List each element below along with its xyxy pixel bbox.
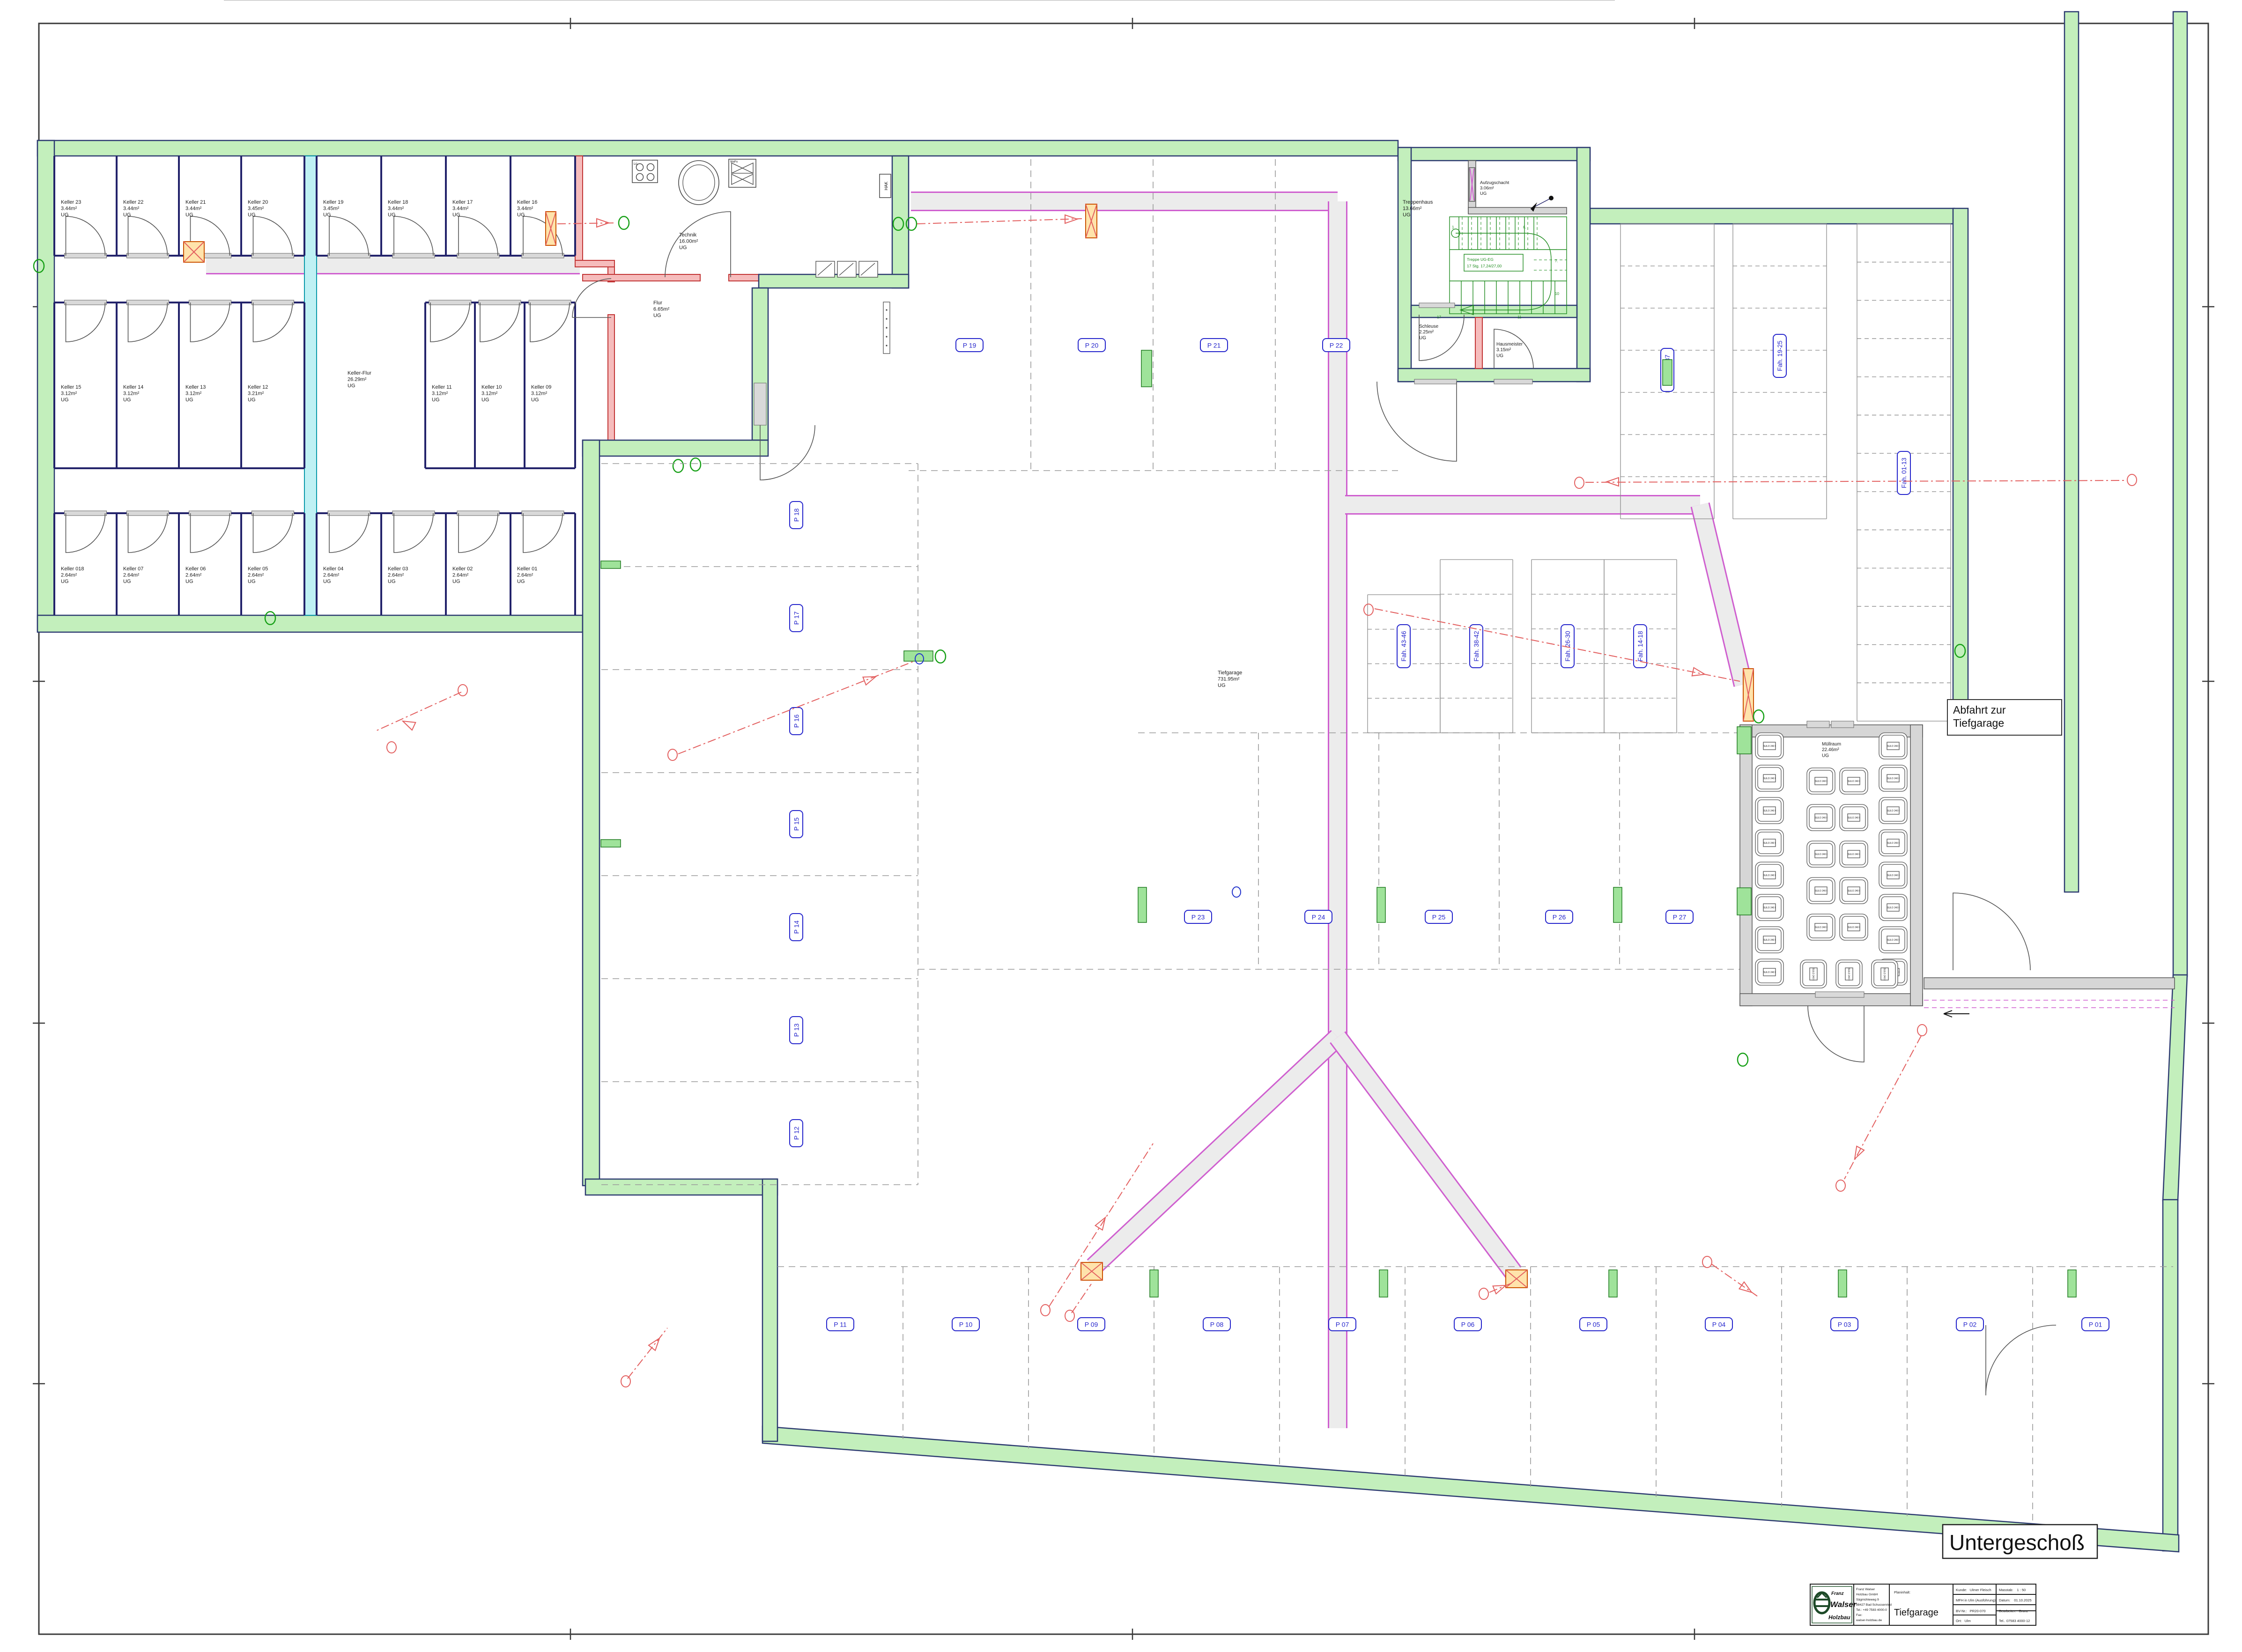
keller-cell-area: 3.45m²	[323, 206, 340, 211]
door-sill	[127, 511, 169, 516]
muellraum-door-panel	[1831, 721, 1854, 728]
keller-cell-name: Keller 12	[248, 384, 268, 390]
svg-text:SULO 240 l: SULO 240 l	[1848, 853, 1860, 856]
pillar	[1379, 1270, 1388, 1297]
keller-door	[523, 513, 562, 553]
svg-text:P 04: P 04	[1712, 1321, 1726, 1328]
room-flur-level: UG	[653, 313, 661, 318]
svg-text:SULO 240 l: SULO 240 l	[1887, 745, 1899, 748]
keller-cell-area: 2.64m²	[388, 572, 404, 578]
keller-cell-name: Keller 20	[248, 199, 268, 205]
stair-note-line1: Treppe UG-EG	[1467, 257, 1494, 262]
door-sill	[754, 383, 766, 425]
keller-cell-level: UG	[531, 397, 539, 403]
door-sill	[522, 511, 564, 516]
waste-bin: SULO 240 l	[1836, 960, 1862, 988]
parking-spot-p07: P 07	[1329, 1318, 1356, 1331]
room-muellraum-level: UG	[1822, 753, 1829, 758]
wall-right-slant	[2163, 975, 2187, 1201]
vent-marker	[619, 216, 629, 229]
door-sill	[252, 511, 294, 516]
masstab-label: Masstab:	[1999, 1588, 2013, 1592]
stair-step-number: 7.	[1555, 259, 1558, 263]
red-marker	[1702, 1256, 1712, 1268]
red-marker	[1917, 1025, 1927, 1036]
leader-arrow	[401, 717, 415, 730]
projekt: MFH in Ulm (Ausführung)	[1956, 1598, 1996, 1602]
parking-spot-p26: P 26	[1546, 910, 1573, 923]
vent-duct	[1700, 505, 1743, 685]
waste-bin: SULO 240 l	[1755, 733, 1783, 759]
svg-text:SULO 240 l: SULO 240 l	[1763, 939, 1776, 942]
door-sill	[392, 253, 435, 258]
waste-bin: SULO 240 l	[1879, 894, 1907, 921]
keller-cell-area: 2.64m²	[248, 572, 264, 578]
pillar	[1663, 360, 1672, 385]
parking-spot-p03: P 03	[1831, 1318, 1858, 1331]
svg-text:P 01: P 01	[2089, 1321, 2102, 1328]
abfahrt-line1: Abfahrt zur	[1953, 704, 2006, 716]
leader-line	[1585, 480, 2126, 482]
parking-spot-p16: P 16	[790, 708, 803, 735]
room-hausmeister-level: UG	[1496, 353, 1503, 358]
door-sill	[127, 253, 169, 258]
parking-spot-p04: P 04	[1705, 1318, 1732, 1331]
leader-arrow	[863, 673, 878, 685]
keller-cell-area: 3.45m²	[248, 206, 264, 211]
parking-spot-p24: P 24	[1305, 910, 1332, 923]
svg-text:Kunde:Ulmer Fleisch: Kunde:Ulmer Fleisch	[1956, 1588, 1991, 1592]
svg-text:SULO 240 l: SULO 240 l	[1848, 817, 1860, 819]
planinhalt-value: Tiefgarage	[1894, 1608, 1939, 1618]
company-line: Tel.: +49 7583 4000-0	[1856, 1608, 1887, 1612]
keller-cell-name: Keller 23	[61, 199, 81, 205]
leader-line	[1375, 609, 1740, 681]
leader-line	[628, 1328, 667, 1379]
parking-spot-p23: P 23	[1184, 910, 1212, 923]
keller-door	[480, 302, 519, 342]
bike-rack-label-fah-14-18: Fah. 14-18	[1634, 625, 1647, 668]
door-sill	[252, 300, 294, 305]
pillar	[904, 651, 933, 661]
keller-door	[128, 216, 168, 256]
stair-step-number: 1	[1452, 225, 1454, 229]
room-tiefgarage-level: UG	[1218, 683, 1226, 688]
keller-cell-level: UG	[481, 397, 489, 403]
svg-text:SULO 240 l: SULO 240 l	[1815, 780, 1827, 783]
bike-rack-label-fah-19-25: Fah. 19-25	[1773, 334, 1786, 377]
red-marker	[621, 1376, 630, 1387]
keller-cell-name: Keller 06	[185, 566, 206, 572]
wall-keller-left	[37, 140, 54, 631]
waste-bin: SULO 240 l	[1872, 960, 1898, 988]
keller-cell-area: 3.21m²	[248, 391, 264, 396]
keller-cell-level: UG	[123, 579, 131, 584]
wall-treppenhaus-right	[1577, 147, 1590, 382]
svg-text:P 27: P 27	[1673, 914, 1687, 921]
vent-duct	[1094, 1037, 1338, 1267]
wall-muellraum-left	[1740, 725, 1752, 1006]
svg-text:P 09: P 09	[1085, 1321, 1098, 1328]
wall-muellraum-right	[1910, 725, 1923, 1006]
svg-text:SULO 240 l: SULO 240 l	[1887, 842, 1899, 845]
keller-cell-area: 2.64m²	[123, 572, 140, 578]
waste-bin: SULO 240 l	[1879, 797, 1907, 824]
svg-text:Fah. 38-42: Fah. 38-42	[1473, 631, 1480, 661]
corridor-door	[572, 279, 611, 317]
wall-treppenhaus-left	[1398, 147, 1411, 382]
svg-text:SULO 240 l: SULO 240 l	[1847, 968, 1850, 980]
keller-cell-level: UG	[248, 579, 256, 584]
wall-bottom-left-vert	[762, 1179, 777, 1441]
svg-text:Ort:Ulm: Ort:Ulm	[1956, 1619, 1971, 1623]
bv-value: PR20-070	[1970, 1609, 1986, 1613]
svg-text:P 26: P 26	[1553, 914, 1566, 921]
bearbeiter-value: Branz	[2019, 1609, 2028, 1613]
vent-marker	[935, 650, 946, 663]
svg-text:SULO 240 l: SULO 240 l	[1887, 907, 1899, 909]
svg-text:P 08: P 08	[1210, 1321, 1224, 1328]
room-flur-area: 6.65m²	[653, 306, 670, 312]
wall-bottom-left-jog	[585, 1179, 777, 1195]
keller-cell-area: 3.44m²	[452, 206, 469, 211]
room-aufzugschacht-name: Aufzugschacht	[1480, 180, 1509, 185]
svg-text:SULO 240 l: SULO 240 l	[1887, 810, 1899, 812]
wall-bike-top	[1590, 208, 1954, 224]
parking-spot-p17: P 17	[790, 605, 803, 632]
keller-cell-level: UG	[123, 397, 131, 403]
abfahrt-line2: Tiefgarage	[1953, 717, 2004, 729]
keller-cell-name: Keller 15	[61, 384, 81, 390]
door-sill	[65, 300, 107, 305]
svg-text:P 22: P 22	[1330, 342, 1343, 349]
svg-text:P 02: P 02	[1963, 1321, 1977, 1328]
keller-door	[459, 216, 498, 256]
parking-spot-p18: P 18	[790, 501, 803, 529]
waste-bin: SULO 240 l	[1807, 914, 1835, 940]
keller-cell-name: Keller 10	[481, 384, 502, 390]
svg-text:Fah. 01-13: Fah. 01-13	[1901, 457, 1908, 488]
red-marker	[1836, 1180, 1845, 1191]
waste-bin: SULO 240 l	[1840, 878, 1868, 904]
room-aufzugschacht-area: 3.06m²	[1480, 186, 1494, 191]
svg-text:P 20: P 20	[1085, 342, 1099, 349]
red-marker	[387, 742, 396, 753]
svg-text:P 13: P 13	[793, 1024, 800, 1037]
parking-spot-p09: P 09	[1078, 1318, 1105, 1331]
pillar	[601, 561, 621, 568]
svg-text:SULO 240 l: SULO 240 l	[1763, 842, 1776, 845]
parking-spot-p05: P 05	[1580, 1318, 1607, 1331]
parking-spot-p11: P 11	[827, 1318, 854, 1331]
keller-cell-area: 3.44m²	[517, 206, 533, 211]
svg-text:P 06: P 06	[1461, 1321, 1475, 1328]
keller-cell-level: UG	[61, 579, 69, 584]
keller-cell-level: UG	[517, 579, 525, 584]
room-treppenhaus-area: 13.66m²	[1403, 206, 1422, 211]
keller-cell-name: Keller 02	[452, 566, 473, 572]
waste-bin: SULO 240 l	[1840, 841, 1868, 867]
svg-text:P 18: P 18	[793, 509, 800, 522]
title-block: Franz Walser Holzbau Franz WalserHolzbau…	[1810, 1584, 2036, 1625]
svg-text:Bearbeiter:Branz: Bearbeiter:Branz	[1999, 1609, 2028, 1613]
keller-cell-level: UG	[185, 212, 193, 218]
keller-cell-name: Keller 11	[432, 384, 452, 390]
keller-cell-name: Keller 17	[452, 199, 473, 205]
plan-content: Keller 233.44m²UGKeller 223.44m²UGKeller…	[34, 0, 2187, 1552]
red-marker	[1041, 1305, 1050, 1316]
pillar	[1838, 1270, 1847, 1297]
door-sill	[65, 511, 107, 516]
company-line: Fax:	[1856, 1614, 1862, 1617]
hak-label: HAK	[884, 182, 888, 191]
pillar	[1141, 350, 1152, 387]
svg-text:BV-Nr.:PR20-070: BV-Nr.:PR20-070	[1956, 1609, 1986, 1613]
svg-text:P 05: P 05	[1587, 1321, 1600, 1328]
waste-bin: SULO 240 l	[1879, 733, 1907, 759]
keller-cell-level: UG	[323, 579, 331, 584]
svg-text:P 12: P 12	[793, 1127, 800, 1140]
keller-cell-name: Keller 13	[185, 384, 206, 390]
svg-text:SULO 240 l: SULO 240 l	[1763, 810, 1776, 812]
leader-line	[917, 219, 1082, 224]
wall-ramp-right	[2173, 12, 2187, 976]
company-line: Sägmühleweg 9	[1856, 1598, 1879, 1601]
bike-rack-label-fah-43-46: Fah. 43-46	[1397, 625, 1410, 668]
waste-bin: SULO 240 l	[1840, 804, 1868, 831]
leader-arrow	[1739, 1282, 1754, 1296]
leader-arrow	[649, 1335, 663, 1350]
svg-text:P 16: P 16	[793, 715, 800, 728]
waste-bin: SULO 240 l	[1755, 862, 1783, 888]
gate-arrow	[1944, 1010, 1969, 1017]
stair-step-number: 6.	[1523, 225, 1526, 229]
floor-title: Untergeschoß	[1949, 1530, 2085, 1555]
company-address: Franz WalserHolzbau GmbHSägmühleweg 9884…	[1856, 1588, 1892, 1622]
parking-spot-p15: P 15	[790, 811, 803, 838]
vent-duct	[1338, 1037, 1514, 1273]
pillar	[1150, 1270, 1158, 1297]
parking-spot-p19: P 19	[956, 339, 983, 352]
keller-door	[253, 513, 293, 553]
keller-door	[128, 513, 168, 553]
pillar	[1377, 887, 1385, 922]
logo-line1: Franz	[1831, 1591, 1844, 1596]
keller-door	[253, 302, 293, 342]
svg-text:SULO 240 l: SULO 240 l	[1763, 777, 1776, 780]
logo-line2: Walser	[1830, 1600, 1857, 1609]
vent-marker	[1738, 1053, 1748, 1066]
room-aufzugschacht-level: UG	[1480, 191, 1487, 196]
bike-rack-label-fah-01-13: Fah. 01-13	[1897, 451, 1910, 494]
wall-treppenhaus-top	[1398, 147, 1590, 161]
keller-cell-level: UG	[432, 397, 440, 403]
keller-cell-name: Keller 14	[123, 384, 143, 390]
keller-door	[66, 302, 105, 342]
pillar	[1138, 887, 1147, 922]
wall-aufzug-bottom	[1468, 207, 1567, 214]
leader-line	[1072, 1284, 1091, 1313]
door-sill	[479, 300, 521, 305]
keller-cell-level: UG	[123, 212, 131, 218]
walser-logo: Franz Walser Holzbau	[1812, 1586, 1857, 1623]
company-line: Holzbau GmbH	[1856, 1593, 1878, 1596]
keller-cell-name: Keller 01	[517, 566, 537, 572]
door-sill	[328, 253, 370, 258]
svg-text:SULO 240 l: SULO 240 l	[1848, 890, 1860, 892]
masstab-value: 1 : 50	[2017, 1588, 2026, 1592]
wall-flur-bottom	[583, 440, 768, 456]
keller-cell-area: 3.12m²	[432, 391, 448, 396]
parking-spot-p10: P 10	[952, 1318, 979, 1331]
svg-text:Fah. 19-25: Fah. 19-25	[1776, 340, 1783, 371]
waste-bin: SULO 240 l	[1879, 862, 1907, 888]
keller-door	[530, 302, 570, 342]
shaft-cyan	[304, 156, 317, 615]
parking-spot-p27: P 27	[1666, 910, 1693, 923]
svg-text:P 14: P 14	[793, 921, 800, 934]
vent-marker	[1754, 710, 1764, 723]
door-sill	[189, 511, 231, 516]
keller-cell-level: UG	[248, 397, 256, 403]
keller-cell-name: Keller 04	[323, 566, 343, 572]
parking-spot-p21: P 21	[1200, 339, 1228, 352]
keller-door	[253, 216, 293, 256]
pillar	[2068, 1270, 2076, 1297]
keller-cell-level: UG	[61, 397, 69, 403]
red-marker	[668, 749, 677, 760]
keller-cell-name: Keller 03	[388, 566, 408, 572]
keller-door	[329, 513, 369, 553]
svg-text:SULO 240 l: SULO 240 l	[1763, 971, 1776, 974]
svg-text:SULO 240 l: SULO 240 l	[1883, 968, 1886, 980]
waste-bin: SULO 240 l	[1807, 841, 1835, 867]
svg-text:P 23: P 23	[1191, 914, 1205, 921]
waste-bin: SULO 240 l	[1755, 797, 1783, 824]
red-marker	[458, 685, 467, 696]
parking-spot-p20: P 20	[1078, 339, 1105, 352]
bv-label: BV-Nr.:	[1956, 1609, 1967, 1613]
waste-bin: SULO 240 l	[1755, 927, 1783, 953]
bearbeiter-label: Bearbeiter:	[1999, 1609, 2016, 1613]
red-marker	[2127, 474, 2137, 486]
parking-spot-p13: P 13	[790, 1017, 803, 1044]
muellraum-door	[1808, 1006, 1864, 1062]
svg-text:P 24: P 24	[1312, 914, 1325, 921]
room-treppenhaus-level: UG	[1403, 212, 1411, 218]
stair-step-number: 10	[1555, 292, 1559, 296]
parking-spot-p02: P 02	[1956, 1318, 1983, 1331]
wapu-symbol-label: WaPu	[730, 161, 738, 163]
treppenhaus-door	[1377, 382, 1457, 461]
keller-cell-area: 2.64m²	[61, 572, 77, 578]
svg-text:P 11: P 11	[834, 1321, 847, 1328]
parking-spot-p01: P 01	[2082, 1318, 2109, 1331]
door-sill	[252, 253, 294, 258]
keller-door	[66, 513, 105, 553]
door-sill	[127, 300, 169, 305]
waste-bin: SULO 240 l	[1807, 768, 1835, 794]
wall-red-technik-bottom2	[729, 274, 759, 281]
keller-door	[128, 302, 168, 342]
muellraum-door-panel	[1807, 721, 1829, 728]
door-sill	[429, 300, 471, 305]
keller-cell-level: UG	[388, 579, 396, 584]
wall-red-keller16	[575, 156, 583, 267]
kunde-label: Kunde:	[1956, 1588, 1967, 1592]
keller-cell-name: Keller 018	[61, 566, 84, 572]
door-sill	[328, 511, 370, 516]
pillar	[1737, 888, 1751, 915]
svg-text:P 07: P 07	[1336, 1321, 1349, 1328]
keller-cell-name: Keller 09	[531, 384, 551, 390]
parking-spot-p12: P 12	[790, 1120, 803, 1147]
room-muellraum-area: 22.46m²	[1822, 747, 1839, 752]
stair-note-line2: 17 Stg. 17,24/27,00	[1467, 264, 1502, 268]
parking-spot-p22: P 22	[1323, 339, 1350, 352]
floor-plan-sheet: Keller 233.44m²UGKeller 223.44m²UGKeller…	[0, 0, 2242, 1652]
blue-marker	[1232, 887, 1241, 897]
keller-cell-level: UG	[452, 212, 460, 218]
room-technik-level: UG	[679, 245, 687, 251]
stair-walkline	[1456, 233, 1551, 310]
planinhalt-label: Planinhalt:	[1894, 1590, 1910, 1594]
waste-bin: SULO 240 l	[1807, 878, 1835, 904]
logo-line3: Holzbau	[1828, 1614, 1850, 1621]
door-sill	[1419, 303, 1455, 308]
wall-right-lower	[2163, 1200, 2178, 1551]
keller-door	[430, 302, 470, 342]
keller-door	[191, 513, 230, 553]
datum-value: 01.10.2025	[2014, 1598, 2032, 1602]
svg-text:P 19: P 19	[963, 342, 977, 349]
keller-cell-area: 3.44m²	[61, 206, 77, 211]
svg-text:SULO 240 l: SULO 240 l	[1815, 817, 1827, 819]
keller-cell-name: Keller 07	[123, 566, 143, 572]
room-keller-flur-level: UG	[348, 383, 355, 389]
door-sill	[457, 253, 499, 258]
svg-text:SULO 240 l: SULO 240 l	[1848, 780, 1860, 783]
wall-top	[37, 140, 1398, 156]
door-sill	[522, 253, 564, 258]
keller-cell-area: 3.44m²	[185, 206, 202, 211]
pillar	[1613, 887, 1622, 922]
wall-ramp-left	[2064, 12, 2079, 892]
room-schleuse-name: Schleuse	[1419, 324, 1439, 329]
room-tiefgarage-name: Tiefgarage	[1218, 670, 1242, 676]
svg-text:Fah. 43-46: Fah. 43-46	[1400, 631, 1407, 661]
keller-cell-area: 3.12m²	[531, 391, 548, 396]
svg-text:P 21: P 21	[1207, 342, 1221, 349]
keller-cell-area: 3.44m²	[388, 206, 404, 211]
keller-cell-level: UG	[248, 212, 256, 218]
svg-text:SULO 240 l: SULO 240 l	[1887, 939, 1899, 942]
room-tiefgarage-area: 731.95m²	[1218, 676, 1240, 682]
parking-spot-p14: P 14	[790, 914, 803, 941]
red-marker	[1479, 1288, 1488, 1299]
ort-value: Ulm	[1965, 1619, 1971, 1623]
vestibule-door	[1953, 893, 2030, 970]
waste-bin: SULO 240 l	[1755, 830, 1783, 856]
keller-cell-area: 2.64m²	[517, 572, 533, 578]
floor-title-box: Untergeschoß	[1943, 1525, 2097, 1558]
keller-cell-name: Keller 22	[123, 199, 143, 205]
svg-text:SULO 240 l: SULO 240 l	[1763, 874, 1776, 877]
keller-cell-area: 3.12m²	[481, 391, 498, 396]
wall-schleuse-hausmeister	[1475, 317, 1482, 369]
room-keller-flur-name: Keller-Flur	[348, 370, 371, 376]
stair-step-number: 17	[1437, 315, 1441, 319]
